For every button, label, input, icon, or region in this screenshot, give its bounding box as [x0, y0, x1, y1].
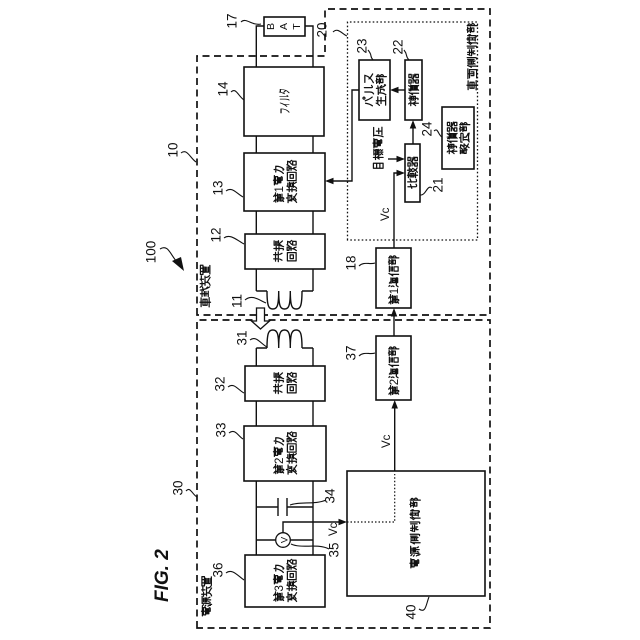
svg-text:10: 10	[166, 142, 181, 157]
svg-text:40: 40	[404, 604, 419, 619]
svg-text:13: 13	[211, 180, 226, 195]
svg-text:1: 1	[389, 288, 401, 294]
svg-text:1: 1	[274, 186, 286, 192]
svg-text:35: 35	[327, 542, 342, 557]
svg-text:11: 11	[230, 294, 245, 308]
svg-text:Vc: Vc	[328, 522, 340, 536]
svg-text:33: 33	[214, 422, 229, 437]
svg-text:Vc: Vc	[380, 207, 392, 221]
svg-text:100: 100	[144, 241, 159, 264]
svg-text:24: 24	[420, 121, 435, 137]
svg-text:Vc: Vc	[381, 434, 393, 448]
svg-text:2: 2	[274, 458, 286, 464]
svg-text:36: 36	[211, 562, 226, 577]
svg-text:32: 32	[213, 376, 228, 391]
svg-text:FIG. 2: FIG. 2	[152, 549, 173, 602]
svg-text:14: 14	[216, 81, 231, 97]
svg-text:37: 37	[344, 345, 359, 360]
svg-text:T: T	[291, 23, 303, 30]
svg-text:23: 23	[355, 38, 370, 53]
svg-text:22: 22	[391, 39, 406, 54]
svg-text:V: V	[279, 536, 290, 543]
svg-text:18: 18	[344, 255, 359, 270]
svg-text:17: 17	[225, 13, 240, 28]
svg-text:31: 31	[235, 330, 250, 345]
svg-text:12: 12	[209, 227, 224, 242]
svg-text:A: A	[278, 23, 290, 30]
svg-text:2: 2	[389, 379, 401, 385]
svg-text:3: 3	[274, 585, 286, 591]
svg-text:34: 34	[323, 488, 338, 504]
svg-text:30: 30	[171, 480, 186, 495]
svg-text:B: B	[265, 23, 277, 30]
svg-text:20: 20	[315, 22, 330, 37]
svg-text:21: 21	[431, 177, 446, 192]
